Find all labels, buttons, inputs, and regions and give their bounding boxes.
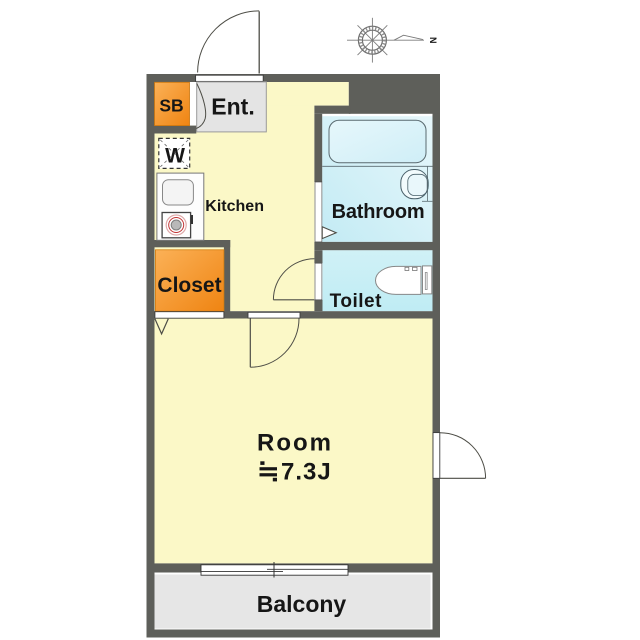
svg-text:Ent.: Ent. [211, 94, 254, 120]
svg-text:SB: SB [159, 95, 183, 115]
svg-text:Room: Room [257, 430, 333, 457]
svg-text:N: N [428, 37, 438, 44]
svg-text:7.3J: 7.3J [281, 459, 332, 486]
svg-text:Bathroom: Bathroom [332, 201, 425, 223]
svg-text:Closet: Closet [157, 274, 221, 297]
svg-text:Balcony: Balcony [257, 591, 347, 617]
svg-text:W: W [165, 145, 185, 168]
svg-text:Kitchen: Kitchen [205, 198, 264, 215]
svg-text:Toilet: Toilet [330, 291, 382, 312]
